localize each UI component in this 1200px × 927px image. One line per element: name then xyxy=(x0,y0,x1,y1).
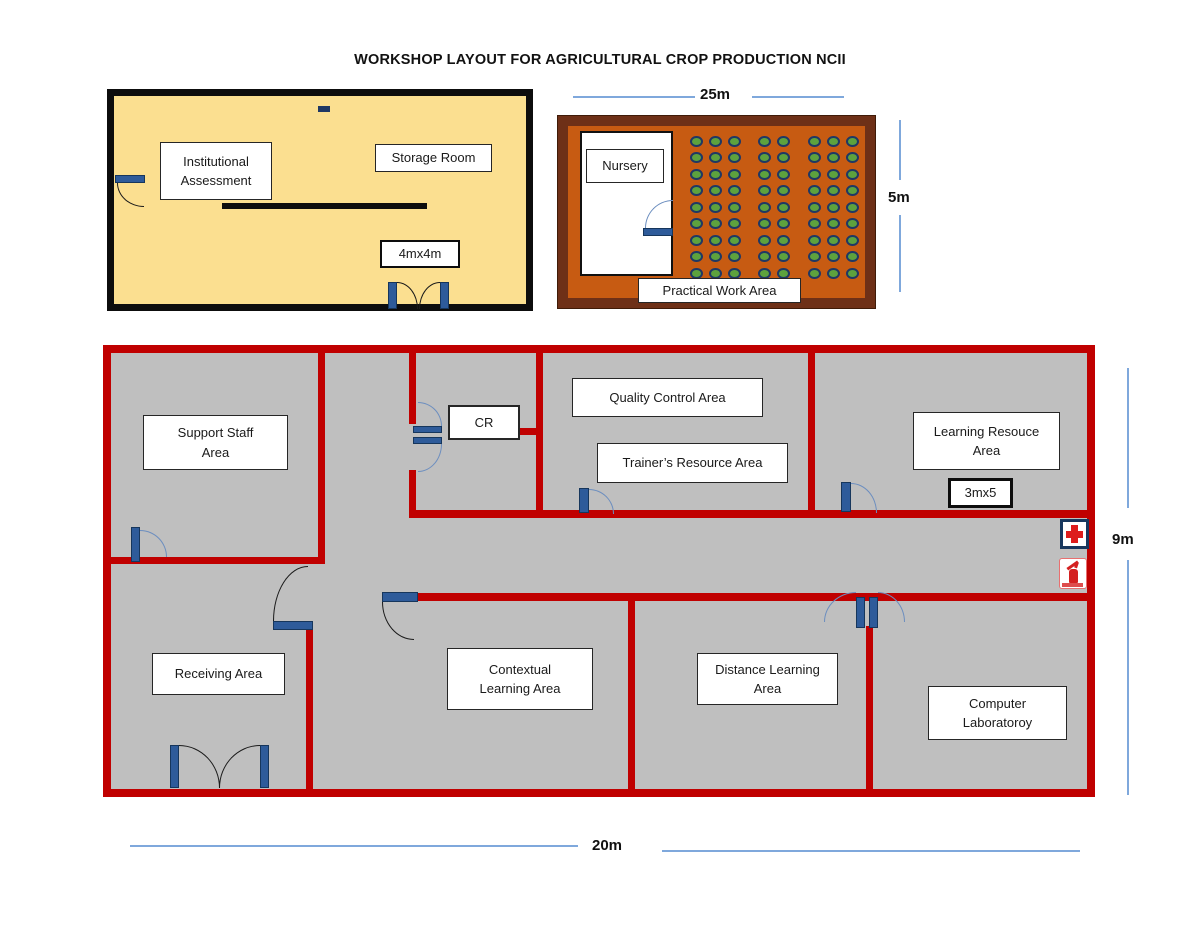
wall-corridor-top xyxy=(409,510,1087,518)
door-leaf xyxy=(273,621,313,630)
distance-learning-label: Distance Learning Area xyxy=(697,653,838,705)
storage-room-label: Storage Room xyxy=(375,144,492,172)
dimension-line xyxy=(130,845,578,847)
dimension-line xyxy=(662,850,1080,852)
door-leaf xyxy=(869,597,878,628)
wall-support-staff-bottom xyxy=(111,557,325,564)
dimension-20m: 20m xyxy=(592,837,622,854)
dimension-25m: 25m xyxy=(700,86,730,103)
dimension-line xyxy=(899,215,901,292)
room-size-label: 4mx4m xyxy=(380,240,460,268)
door-leaf xyxy=(131,527,140,562)
support-staff-label: Support Staff Area xyxy=(143,415,288,470)
learning-resource-label: Learning Resouce Area xyxy=(913,412,1060,470)
cr-label: CR xyxy=(448,405,520,440)
wall-cr-left-upper xyxy=(409,353,416,424)
dimension-line xyxy=(752,96,844,98)
contextual-learning-label: Contextual Learning Area xyxy=(447,648,593,710)
door-leaf xyxy=(260,745,269,788)
extinguisher-body xyxy=(1069,569,1078,583)
practical-work-area-label: Practical Work Area xyxy=(638,278,801,303)
door-leaf xyxy=(382,592,418,602)
wall-cr-connector xyxy=(518,428,540,435)
wall-corridor-bottom xyxy=(385,593,1087,601)
partition-line xyxy=(222,203,427,209)
institutional-assessment-label: Institutional Assessment xyxy=(160,142,272,200)
learning-resource-size-label: 3mx5 xyxy=(948,478,1013,508)
door-leaf xyxy=(413,437,442,444)
dimension-5m: 5m xyxy=(888,189,910,206)
trainers-resource-label: Trainer’s Resource Area xyxy=(597,443,788,483)
cross-horizontal xyxy=(1066,531,1083,538)
door-leaf xyxy=(440,282,449,309)
dimension-line xyxy=(1127,560,1129,795)
extinguisher-nozzle xyxy=(1074,561,1079,568)
door-leaf xyxy=(170,745,179,788)
wall-distance-right xyxy=(866,626,873,789)
computer-laboratory-label: Computer Laboratoroy xyxy=(928,686,1067,740)
door-leaf xyxy=(579,488,589,513)
wall-receiving-right xyxy=(306,628,313,789)
door-leaf xyxy=(388,282,397,309)
wall-trainers-right xyxy=(808,353,815,517)
dimension-line xyxy=(1127,368,1129,508)
page-title: WORKSHOP LAYOUT FOR AGRICULTURAL CROP PR… xyxy=(0,52,1200,68)
nursery-label: Nursery xyxy=(586,149,664,183)
quality-control-label: Quality Control Area xyxy=(572,378,763,417)
assessment-room-outline xyxy=(107,89,533,311)
door-leaf xyxy=(856,597,865,628)
dimension-line xyxy=(573,96,695,98)
fire-extinguisher-icon xyxy=(1059,558,1087,589)
dimension-line xyxy=(899,120,901,180)
workshop-layout-diagram: WORKSHOP LAYOUT FOR AGRICULTURAL CROP PR… xyxy=(0,0,1200,927)
door-leaf xyxy=(841,482,851,512)
dimension-9m: 9m xyxy=(1112,531,1134,548)
first-aid-icon xyxy=(1060,519,1089,549)
wall-support-staff-right xyxy=(318,353,325,557)
door-leaf xyxy=(115,175,145,183)
wall-contextual-right xyxy=(628,601,635,789)
wall-cr-right xyxy=(536,353,543,517)
door-leaf xyxy=(413,426,442,433)
receiving-area-label: Receiving Area xyxy=(152,653,285,695)
extinguisher-caption xyxy=(1062,583,1083,587)
window-dash xyxy=(318,106,330,112)
door-leaf xyxy=(643,228,673,236)
